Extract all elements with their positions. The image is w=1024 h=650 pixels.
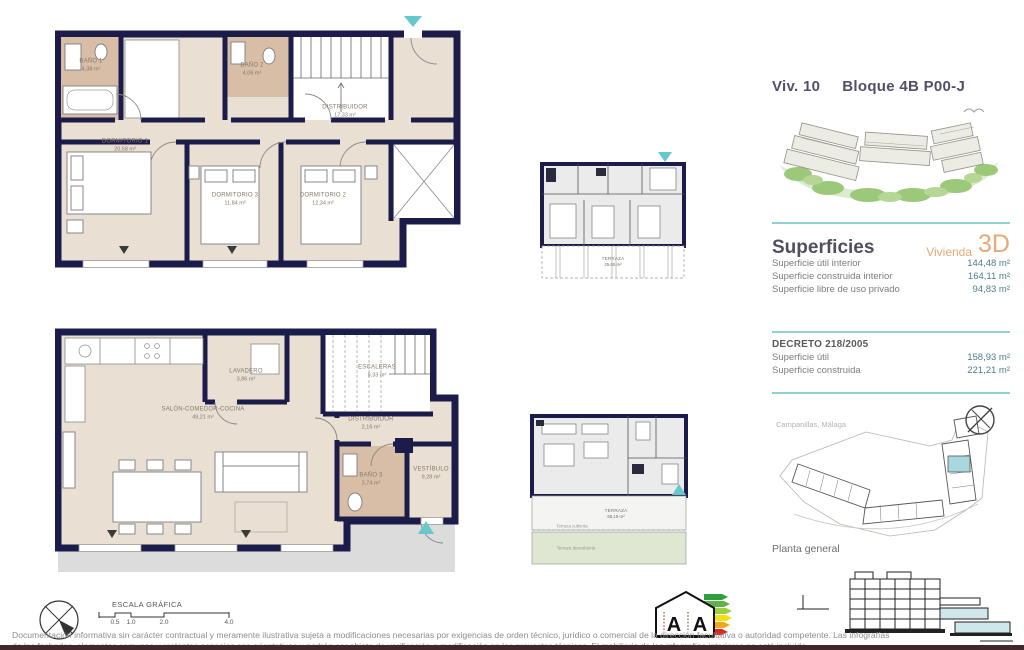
- divider: [772, 222, 1010, 224]
- divider: [772, 331, 1010, 333]
- divider: [772, 392, 1010, 394]
- entrance-marker-icon: [404, 16, 422, 27]
- highlighted-unit: [948, 456, 970, 472]
- decreto-row: Superficie útil 158,93 m²: [772, 352, 1010, 363]
- superficies-header: Superficies Vivienda 3D: [772, 230, 1010, 259]
- vivienda-tag: Vivienda: [926, 245, 972, 259]
- badge-3d: 3D: [978, 230, 1010, 259]
- superficies-row: Superficie útil interior 144,48 m²: [772, 258, 1010, 269]
- site-location-label: Campanillas, Málaga: [776, 420, 846, 429]
- terrace-covered-label: Terraza cubierta: [556, 524, 587, 529]
- scale-tick: 2.0: [159, 619, 168, 626]
- keyplan-upper: TERRAZA25,65 m²: [538, 150, 688, 290]
- bottom-border-bar: [0, 645, 1024, 650]
- floorplan-main: LAVADERO3,86 m² ESCALERAS9,33 m² SALÓN-C…: [55, 314, 461, 576]
- unit-title: Viv. 10 Bloque 4B P00-J: [772, 78, 965, 95]
- plan-sheet: BAÑO 14,38 m² BAÑO 24,06 m² DISTRIBUIDOR…: [0, 0, 1024, 650]
- floorplan-upper: BAÑO 14,38 m² BAÑO 24,06 m² DISTRIBUIDOR…: [55, 14, 461, 286]
- bird-icon: [964, 109, 984, 112]
- planta-general-caption: Planta general: [772, 543, 840, 555]
- scale-tick: 1.0: [126, 619, 135, 626]
- keyplan-upper-drawing: [538, 150, 688, 290]
- superficies-row: Superficie construida interior 164,11 m²: [772, 271, 1010, 282]
- keyplan-main-drawing: [528, 408, 690, 570]
- decreto-row: Superficie construida 221,21 m²: [772, 365, 1010, 376]
- scale-tick: 0.5: [110, 619, 119, 626]
- disclaimer-line1: Documentación informativa sin carácter c…: [12, 630, 1012, 642]
- scale-tick: 4.0: [224, 619, 233, 626]
- floorplan-main-drawing: [55, 314, 461, 576]
- keyplan-main: TERRAZA66,19 m² Terraza cubierta Terraza…: [528, 408, 690, 570]
- superficies-heading: Superficies: [772, 237, 874, 259]
- highlighted-floor: [940, 608, 988, 619]
- aerial-render-3d: [768, 96, 1012, 214]
- decreto-heading: DECRETO 218/2005: [772, 339, 868, 350]
- superficies-row: Superficie libre de uso privado 94,83 m²: [772, 284, 1010, 295]
- unit-number: Viv. 10: [772, 78, 820, 95]
- terrace-uncovered-label: Terraza descubierta: [557, 546, 596, 551]
- block-name: Bloque 4B P00-J: [842, 78, 965, 95]
- floorplan-upper-drawing: [55, 14, 461, 286]
- entrance-marker-icon: [658, 152, 672, 162]
